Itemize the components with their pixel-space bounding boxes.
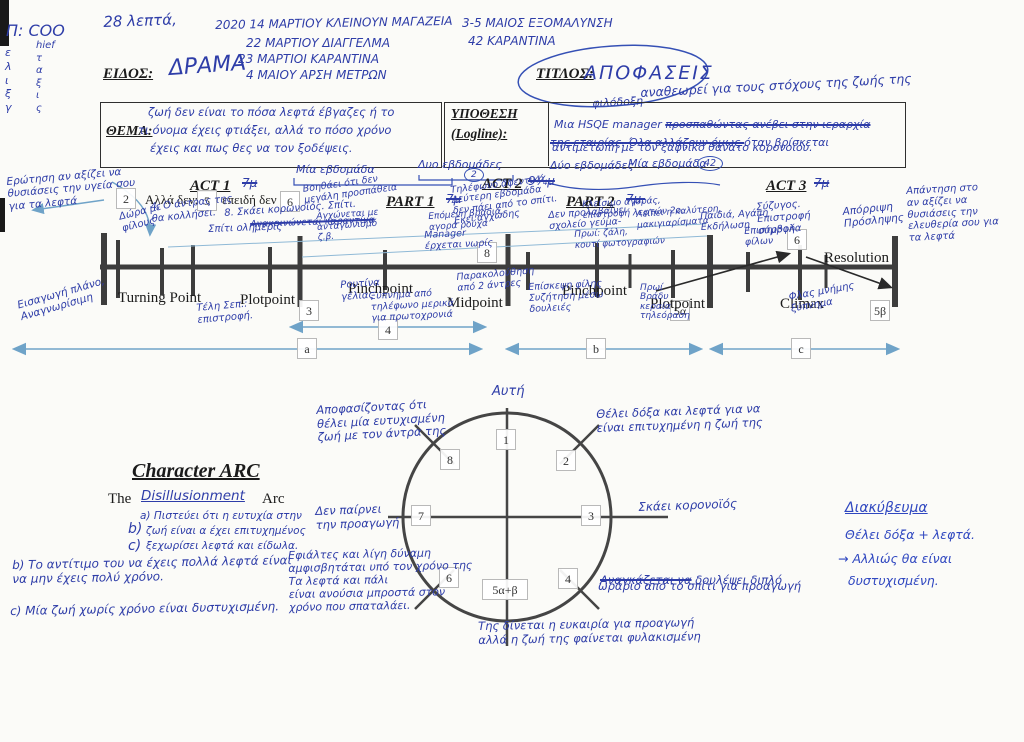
timeline-note: Επιστροφή φίλων	[744, 223, 796, 248]
margin-letter-column: hief τ α ξ ι ς	[36, 40, 55, 115]
timeline-note: Εισαγωγή πλάνο, Αναγνωρίσιμη	[16, 275, 109, 324]
timeline-note: Ξύπνημα από τηλέφωνο μερικά για πρωτοχρο…	[370, 287, 455, 325]
theme-text: έχεις και πως θες να τον ξοδέψεις.	[150, 142, 353, 156]
date-note: 2020 14 ΜΑΡΤΙΟΥ ΚΛΕΙΝΟΥΝ ΜΑΓΑΖΕΙΑ	[215, 14, 453, 32]
arc-subtitle-post: Arc	[262, 491, 285, 508]
stakes-line: δυστυχισμένη.	[848, 574, 939, 589]
scan-edge-artifact	[0, 198, 5, 232]
beat-box-3: 3	[299, 300, 319, 321]
logline-divider	[548, 102, 549, 166]
genre-value: ΔΡΑΜΑ	[168, 51, 247, 82]
act3-label: ACT 3	[766, 178, 806, 195]
timeline-note: Πρωί Βράδυ κεραία τηλεόραση	[640, 284, 690, 322]
stakes-line: Θέλει δόξα + λεφτά.	[845, 528, 975, 543]
margin-answer-note: Απάντηση στο αν αξίζει να θυσιάσεις την …	[906, 181, 1000, 245]
covid-timeline-note: 42 ΚΑΡΑΝΤΙΝΑ	[468, 34, 556, 48]
circle-box-3: 3	[581, 505, 601, 526]
arc-note-nw: Αποφασίζοντας ότι θέλει μία ευτυχισμένη …	[316, 397, 446, 444]
circle-box-2: 2	[556, 450, 576, 471]
point-turning-point: Turning Point	[118, 290, 201, 307]
covid-timeline-note: 3-5 ΜΑΙΟΣ ΕΞΟΜΑΛΥΝΣΗ	[462, 16, 613, 30]
circle-box-1: 1	[496, 429, 516, 450]
arc-note-e: Σκάει κορονοϊός	[638, 497, 737, 515]
logline-label: (Logline):	[451, 126, 507, 142]
arc-subtitle-pre: The	[108, 491, 131, 508]
logline-text: αντιμέτωπη με τον ξαφνικό θάνατο κορονοϊ…	[552, 142, 813, 155]
circle-box-7: 7	[411, 505, 431, 526]
point-midpoint: Midpoint	[447, 295, 503, 312]
timeline-note: Επίσκεψη φίλης Συζήτηση μέσω δουλειές	[528, 278, 604, 315]
scanned-story-worksheet: 28 λεπτά, Π: COO ε λ ι ξ γ hief τ α ξ ι …	[0, 0, 1024, 742]
margin-code: Π: COO	[6, 22, 65, 41]
character-arc-title: Character ARC	[132, 460, 260, 483]
arc-note-w: Δεν παίρνει την προαγωγή	[315, 502, 400, 532]
genre-label: ΕΙΔΟΣ:	[103, 66, 153, 83]
act3-duration: 7μ	[814, 176, 829, 190]
arc-extra-note-c: c) Μία ζωή χωρίς χρόνο είναι δυστυχισμέν…	[10, 599, 279, 618]
arc-list-item: a) Πιστεύει ότι η ευτυχία στην	[140, 510, 302, 522]
arc-extra-note-b: b) Το αντίτιμο του να έχεις πολλά λεφτά …	[12, 553, 292, 586]
date-note: 23 ΜΑΡΤΙΟΙ ΚΑΡΑΝΤΙΝΑ	[238, 52, 379, 66]
arc-list-item: ξεχωρίσει λεφτά και είδωλα.	[146, 540, 298, 552]
part1-label: PART 1	[386, 194, 434, 211]
timeline-note: Παρακολούθηση από 2 άντρες	[456, 265, 536, 294]
timeline-note: Απόρριψη Πρόσληψης	[842, 200, 905, 231]
segment-box-a: a	[297, 338, 317, 359]
timeline-note: Αγχώνεται με ανταγωνισμό ζ.β.	[316, 208, 380, 244]
timeline-note: Τέλη Σεπ.: επιστροφή.	[196, 298, 254, 326]
weeks-count-badge: 2	[464, 168, 484, 182]
weeks-note: Δύο εβδομάδες	[550, 160, 634, 173]
margin-letter-column: ε λ ι ξ γ	[5, 46, 12, 115]
circle-top-label: Αυτή	[492, 384, 524, 399]
segment-box-c: c	[791, 338, 811, 359]
beat-box-5b: 5β	[870, 300, 890, 321]
arc-note-ne: Θέλει δόξα και λεφτά για να είναι επιτυχ…	[596, 402, 763, 435]
circle-box-4: 4	[558, 568, 578, 589]
weeks-count-badge: 42	[697, 156, 723, 171]
weeks-note: Δυο εβδομάδες	[418, 159, 502, 172]
arc-list-marker: b)	[128, 521, 142, 538]
title-value: ΑΠΟΦΑΣΕΙΣ	[584, 62, 714, 84]
act1-duration: 7μ	[242, 176, 257, 190]
stakes-line: → Αλλιώς θα είναι	[838, 552, 952, 567]
date-note: 4 ΜΑΙΟΥ ΑΡΣΗ ΜΕΤΡΩΝ	[246, 68, 387, 82]
arc-note-se-line2: ωράριο από το σπίτι για προαγωγή	[598, 580, 801, 594]
arc-type-handwritten: Disillusionment	[141, 489, 245, 505]
arc-list-marker: c)	[128, 538, 141, 555]
circle-box-8: 8	[440, 449, 460, 470]
arc-note-sw: Εφιάλτες και λίγη δύναμη αμφισβητάται υπ…	[288, 547, 473, 615]
segment-box-b: b	[586, 338, 606, 359]
arc-list-item: ζωή είναι α έχει επιτυχημένος	[146, 525, 306, 537]
weeks-note: Μία εβδομάδα	[628, 158, 707, 171]
timeline-note: Επόμενη βραδιά, αγορά ρούχα	[428, 207, 505, 233]
duration-note: 28 λεπτά,	[103, 11, 177, 31]
arc-note-s: Της δίνεται η ευκαιρία για προαγωγή αλλά…	[478, 616, 701, 647]
stakes-title: Διακύβευμα	[845, 500, 928, 517]
point-resolution: Resolution	[824, 250, 889, 267]
date-note: 22 ΜΑΡΤΙΟΥ ΔΙΑΓΓΕΛΜΑ	[246, 36, 390, 50]
theme-text: ζωή δεν είναι το πόσα λεφτά έβγαζες ή το	[148, 106, 394, 120]
timeline-note: Πρωί: ζάλη, κουτί φωτογραφιών	[574, 225, 665, 251]
circle-box-5ab: 5α+β	[482, 579, 528, 600]
theme-text: τι όνομα έχεις φτιάξει, αλλά το πόσο χρό…	[138, 124, 391, 138]
logline-label: ΥΠΟΘΕΣΗ	[451, 106, 518, 122]
